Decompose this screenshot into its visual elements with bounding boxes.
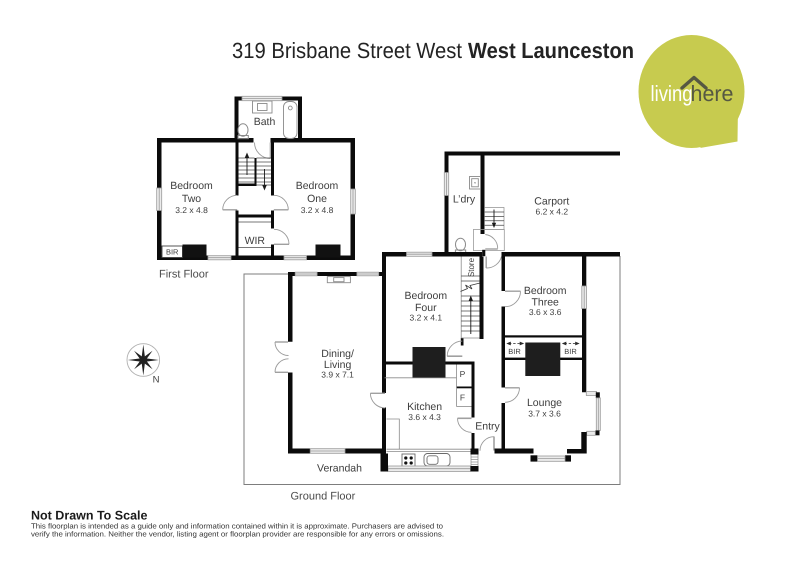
svg-text:Entry: Entry [475, 421, 500, 433]
svg-text:One: One [307, 193, 327, 205]
svg-text:Ground Floor: Ground Floor [291, 491, 356, 503]
svg-text:3.6 x 4.3: 3.6 x 4.3 [408, 412, 441, 422]
svg-text:Bath: Bath [254, 116, 276, 128]
svg-text:N: N [153, 375, 160, 386]
svg-text:BIR: BIR [166, 248, 179, 257]
svg-text:Bedroom: Bedroom [170, 180, 213, 192]
svg-text:F: F [460, 393, 465, 403]
svg-text:3.2 x 4.8: 3.2 x 4.8 [175, 205, 208, 215]
svg-text:Store: Store [466, 258, 476, 277]
svg-text:BIR: BIR [564, 347, 577, 356]
svg-text:Bedroom: Bedroom [524, 285, 567, 297]
svg-text:West Launceston: West Launceston [468, 38, 634, 63]
svg-text:Not Drawn To Scale: Not Drawn To Scale [31, 509, 148, 523]
svg-text:P: P [460, 369, 466, 379]
svg-text:3.2 x 4.1: 3.2 x 4.1 [409, 313, 442, 323]
svg-text:Two: Two [182, 193, 201, 205]
svg-text:verify the information. Neithe: verify the information. Neither the vend… [31, 530, 444, 539]
svg-text:Bedroom: Bedroom [296, 180, 339, 192]
svg-text:319 Brisbane Street West: 319 Brisbane Street West [232, 38, 462, 63]
svg-text:3.6 x 3.6: 3.6 x 3.6 [529, 307, 562, 317]
svg-text:WIR: WIR [245, 235, 266, 247]
svg-text:3.7 x 3.6: 3.7 x 3.6 [528, 409, 561, 419]
svg-text:3.9 x 7.1: 3.9 x 7.1 [321, 370, 354, 380]
svg-text:living: living [651, 81, 693, 106]
svg-text:3.2 x 4.8: 3.2 x 4.8 [301, 205, 334, 215]
svg-text:First Floor: First Floor [159, 269, 209, 281]
svg-text:Bedroom: Bedroom [404, 290, 447, 302]
svg-text:L’dry: L’dry [453, 194, 476, 206]
svg-text:here: here [691, 81, 734, 106]
svg-text:Verandah: Verandah [317, 463, 362, 475]
svg-text:6.2 x 4.2: 6.2 x 4.2 [535, 207, 568, 217]
svg-text:Lounge: Lounge [527, 397, 562, 409]
svg-text:BIR: BIR [508, 347, 521, 356]
